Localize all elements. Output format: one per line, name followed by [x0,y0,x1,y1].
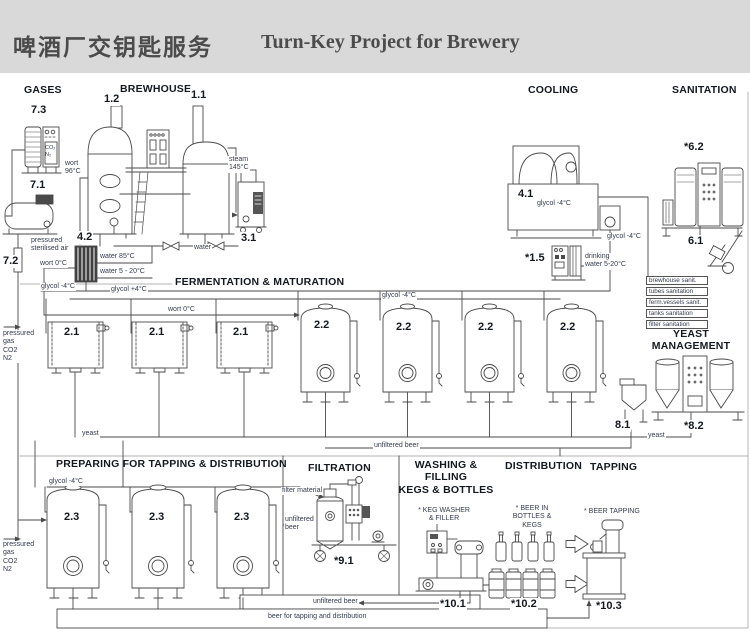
diagram-line-art [0,0,750,636]
brewery-diagram-page: 啤酒厂交钥匙服务 Turn-Key Project for Brewery [0,0,750,636]
